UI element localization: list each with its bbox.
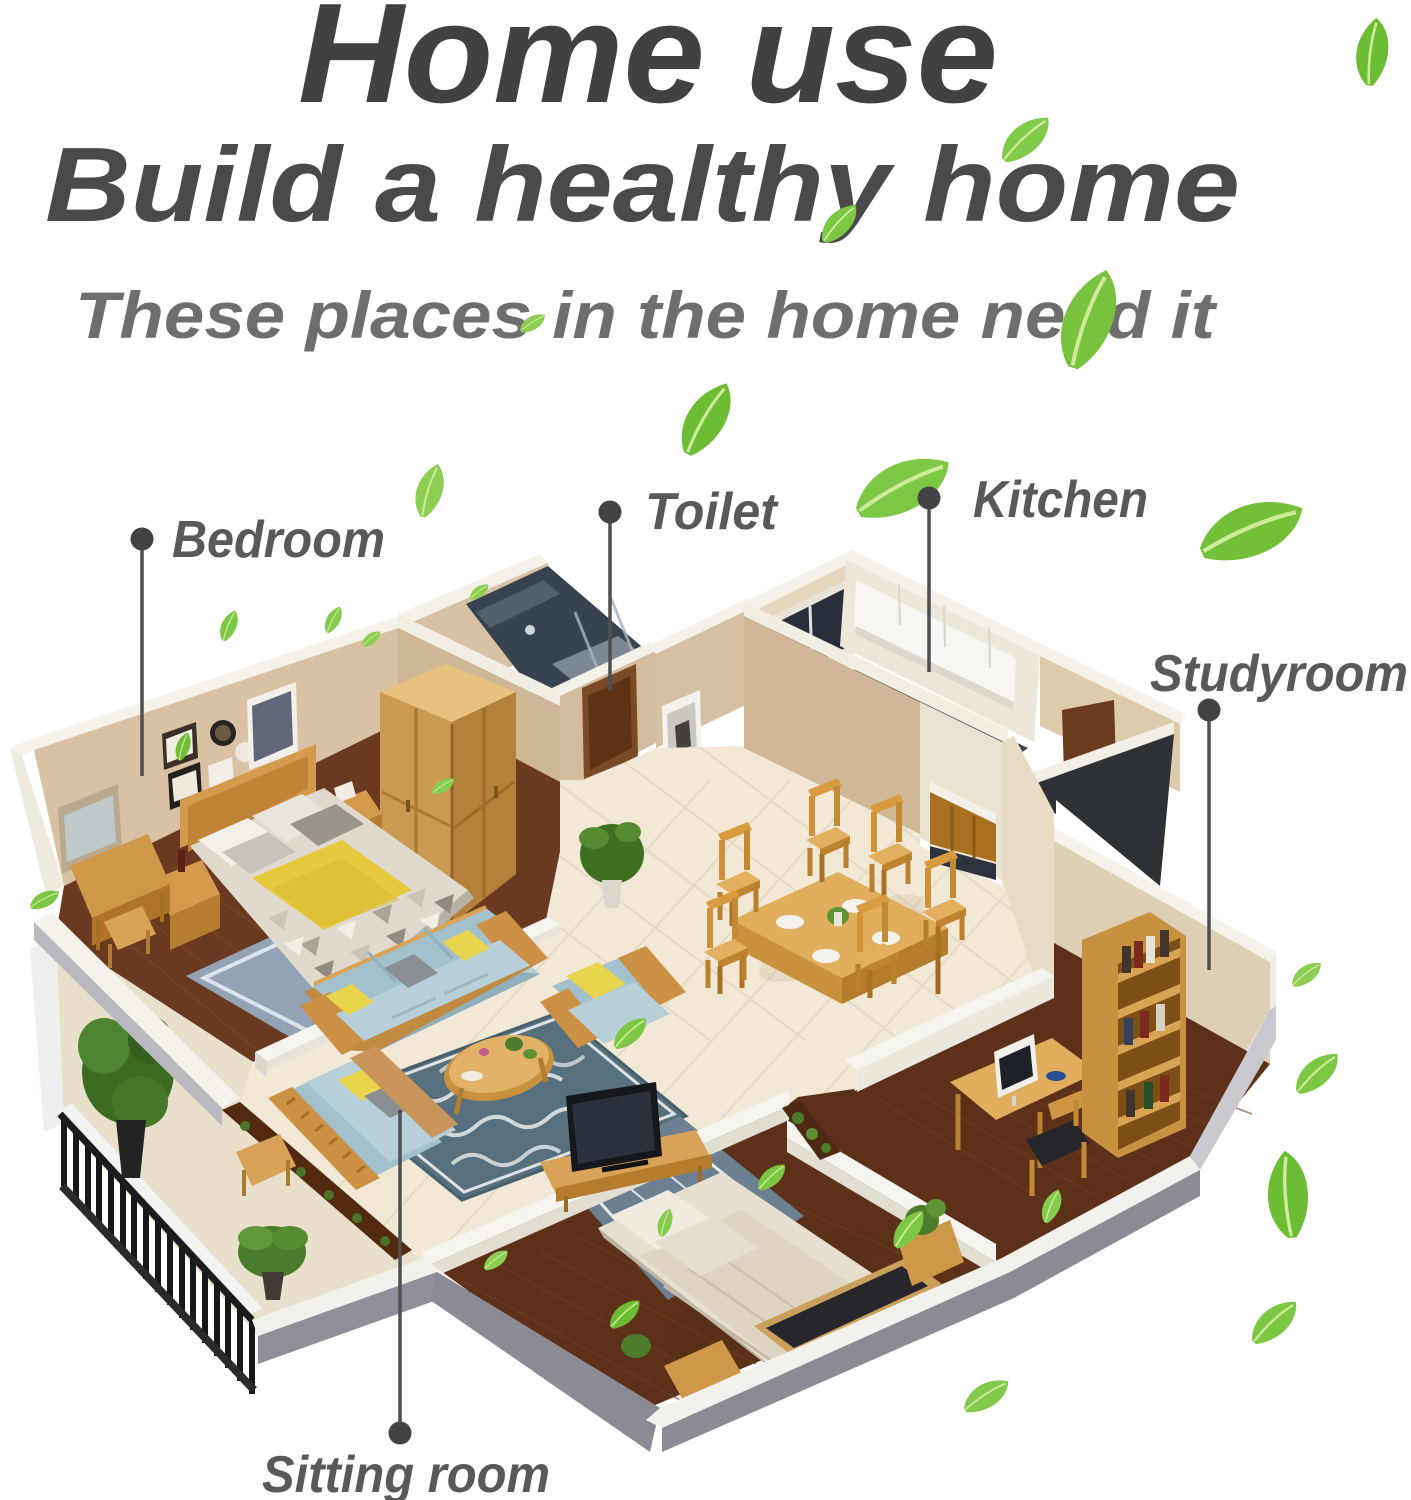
svg-text:Build a healthy home: Build a healthy home xyxy=(45,126,1240,244)
svg-text:Bedroom: Bedroom xyxy=(172,511,385,569)
svg-text:Studyroom: Studyroom xyxy=(1150,645,1408,703)
svg-text:Toilet: Toilet xyxy=(645,483,780,541)
svg-text:Kitchen: Kitchen xyxy=(973,471,1148,529)
svg-text:Sitting room: Sitting room xyxy=(262,1446,550,1500)
svg-text:These places in the home need: These places in the home need it xyxy=(75,278,1218,352)
svg-text:Home use: Home use xyxy=(298,0,998,133)
